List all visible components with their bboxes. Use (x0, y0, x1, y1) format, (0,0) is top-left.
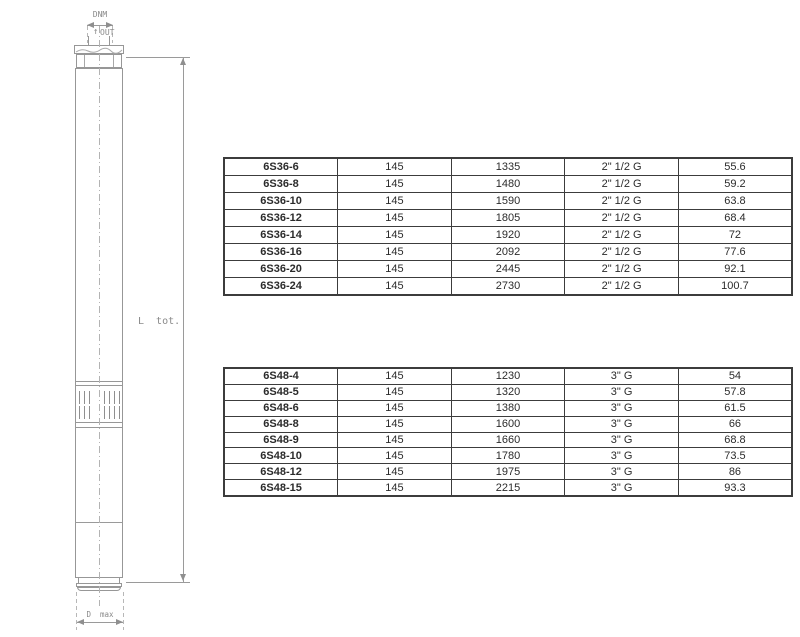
spec-table-6s36: 6S36-614513352" 1/2 G55.66S36-814514802"… (223, 157, 793, 296)
dmax-arrow-left-icon (77, 619, 84, 625)
table-cell: 1590 (451, 193, 565, 210)
table-cell: 3" G (565, 400, 679, 416)
table-cell: 1320 (451, 384, 565, 400)
table-cell: 6S36-6 (224, 158, 338, 176)
table-cell: 1920 (451, 227, 565, 244)
table-row: 6S48-1214519753" G86 (224, 464, 792, 480)
table-cell: 6S48-10 (224, 448, 338, 464)
table-cell: 1600 (451, 416, 565, 432)
table-cell: 145 (338, 210, 452, 227)
table-cell: 2" 1/2 G (565, 158, 679, 176)
table-cell: 2" 1/2 G (565, 278, 679, 296)
table-cell: 2" 1/2 G (565, 210, 679, 227)
table-row: 6S48-1014517803" G73.5 (224, 448, 792, 464)
table-row: 6S48-514513203" G57.8 (224, 384, 792, 400)
table-cell: 145 (338, 368, 452, 384)
table-cell: 3" G (565, 416, 679, 432)
table-cell: 145 (338, 158, 452, 176)
table-cell: 1805 (451, 210, 565, 227)
table-cell: 1230 (451, 368, 565, 384)
table-cell: 55.6 (678, 158, 792, 176)
table-row: 6S36-614513352" 1/2 G55.6 (224, 158, 792, 176)
table-cell: 3" G (565, 448, 679, 464)
table-cell: 1780 (451, 448, 565, 464)
table-cell: 86 (678, 464, 792, 480)
table-cell: 72 (678, 227, 792, 244)
table-cell: 6S36-16 (224, 244, 338, 261)
table-cell: 92.1 (678, 261, 792, 278)
table-cell: 2215 (451, 480, 565, 496)
table-row: 6S36-1014515902" 1/2 G63.8 (224, 193, 792, 210)
table-cell: 145 (338, 244, 452, 261)
table-cell: 2" 1/2 G (565, 193, 679, 210)
table-cell: 57.8 (678, 384, 792, 400)
table-cell: 2445 (451, 261, 565, 278)
table-cell: 6S48-9 (224, 432, 338, 448)
table-cell: 6S36-20 (224, 261, 338, 278)
table-row: 6S48-414512303" G54 (224, 368, 792, 384)
ltot-extension-bottom (126, 582, 190, 583)
table-row: 6S36-1414519202" 1/2 G72 (224, 227, 792, 244)
table-cell: 145 (338, 227, 452, 244)
table-cell: 1380 (451, 400, 565, 416)
table-cell: 6S36-12 (224, 210, 338, 227)
table-cell: 68.8 (678, 432, 792, 448)
table-row: 6S48-614513803" G61.5 (224, 400, 792, 416)
ltot-label: L tot. (138, 317, 180, 327)
dmax-arrow-right-icon (116, 619, 123, 625)
table-cell: 6S48-5 (224, 384, 338, 400)
table-cell: 6S48-8 (224, 416, 338, 432)
spec-table-6s36-body: 6S36-614513352" 1/2 G55.66S36-814514802"… (224, 158, 792, 295)
table-cell: 2092 (451, 244, 565, 261)
table-cell: 6S48-4 (224, 368, 338, 384)
spec-table-6s48: 6S48-414512303" G546S48-514513203" G57.8… (223, 367, 793, 497)
table-cell: 61.5 (678, 400, 792, 416)
table-cell: 63.8 (678, 193, 792, 210)
table-cell: 3" G (565, 480, 679, 496)
table-cell: 1660 (451, 432, 565, 448)
table-cell: 145 (338, 193, 452, 210)
dmax-label: D max (80, 611, 120, 619)
table-cell: 6S48-12 (224, 464, 338, 480)
table-cell: 3" G (565, 432, 679, 448)
table-cell: 100.7 (678, 278, 792, 296)
table-cell: 6S48-15 (224, 480, 338, 496)
table-cell: 2" 1/2 G (565, 176, 679, 193)
table-row: 6S48-914516603" G68.8 (224, 432, 792, 448)
table-cell: 145 (338, 416, 452, 432)
table-cell: 145 (338, 432, 452, 448)
table-cell: 145 (338, 448, 452, 464)
table-cell: 2" 1/2 G (565, 227, 679, 244)
table-row: 6S36-2414527302" 1/2 G100.7 (224, 278, 792, 296)
table-cell: 2" 1/2 G (565, 244, 679, 261)
catalog-page: DNM ↑ OUT (0, 0, 800, 637)
table-cell: 6S48-6 (224, 400, 338, 416)
table-row: 6S36-1214518052" 1/2 G68.4 (224, 210, 792, 227)
table-cell: 145 (338, 480, 452, 496)
table-cell: 73.5 (678, 448, 792, 464)
ltot-arrow-up-icon (180, 58, 186, 65)
table-row: 6S36-814514802" 1/2 G59.2 (224, 176, 792, 193)
table-cell: 93.3 (678, 480, 792, 496)
table-cell: 2" 1/2 G (565, 261, 679, 278)
table-cell: 6S36-10 (224, 193, 338, 210)
head-side-line-right (113, 55, 114, 67)
table-cell: 145 (338, 464, 452, 480)
table-cell: 77.6 (678, 244, 792, 261)
dnm-label: DNM (86, 11, 114, 19)
table-cell: 68.4 (678, 210, 792, 227)
table-cell: 59.2 (678, 176, 792, 193)
table-row: 6S48-1514522153" G93.3 (224, 480, 792, 496)
table-cell: 3" G (565, 384, 679, 400)
table-row: 6S48-814516003" G66 (224, 416, 792, 432)
spec-table-6s48-body: 6S48-414512303" G546S48-514513203" G57.8… (224, 368, 792, 496)
table-cell: 6S36-24 (224, 278, 338, 296)
table-cell: 145 (338, 278, 452, 296)
table-cell: 3" G (565, 464, 679, 480)
table-cell: 6S36-8 (224, 176, 338, 193)
table-cell: 66 (678, 416, 792, 432)
dmax-extension-right (123, 592, 124, 630)
table-cell: 6S36-14 (224, 227, 338, 244)
table-cell: 1335 (451, 158, 565, 176)
table-cell: 145 (338, 400, 452, 416)
table-cell: 54 (678, 368, 792, 384)
ltot-arrow-down-icon (180, 574, 186, 581)
ltot-dimension-line (183, 57, 184, 582)
table-cell: 2730 (451, 278, 565, 296)
table-cell: 1975 (451, 464, 565, 480)
table-cell: 145 (338, 384, 452, 400)
head-side-line-left (84, 55, 85, 67)
table-row: 6S36-1614520922" 1/2 G77.6 (224, 244, 792, 261)
table-cell: 3" G (565, 368, 679, 384)
center-line (99, 26, 100, 606)
table-cell: 1480 (451, 176, 565, 193)
pump-diagram: DNM ↑ OUT (0, 0, 220, 637)
table-cell: 145 (338, 176, 452, 193)
table-cell: 145 (338, 261, 452, 278)
table-row: 6S36-2014524452" 1/2 G92.1 (224, 261, 792, 278)
